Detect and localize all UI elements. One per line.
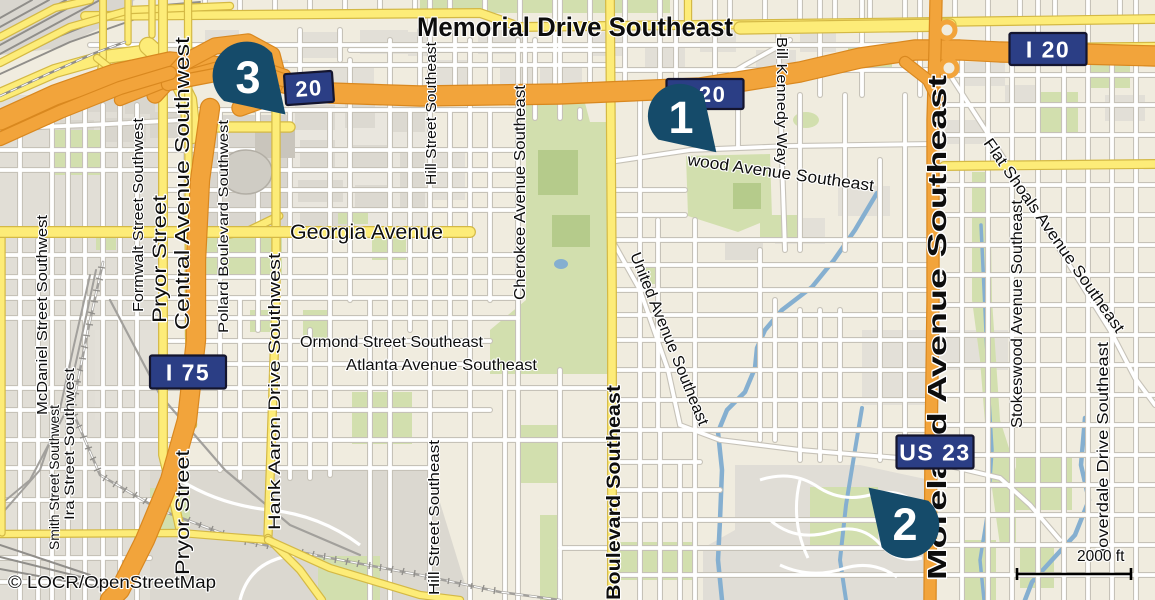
svg-text:Pryor Street: Pryor Street <box>173 449 194 575</box>
svg-text:McDaniel Street Southwest: McDaniel Street Southwest <box>34 214 51 415</box>
svg-text:Boulevard Southeast: Boulevard Southeast <box>604 384 625 600</box>
svg-text:Ira Street Southwest: Ira Street Southwest <box>61 368 77 520</box>
svg-text:Memorial Drive Southeast: Memorial Drive Southeast <box>417 12 733 42</box>
svg-text:20: 20 <box>294 75 323 102</box>
svg-text:loverdale Drive Southeast: loverdale Drive Southeast <box>1095 341 1112 552</box>
svg-text:2000 ft: 2000 ft <box>1077 548 1125 565</box>
svg-text:Pollard Boulevard Southwest: Pollard Boulevard Southwest <box>215 120 231 333</box>
svg-text:Bill Kennedy Way: Bill Kennedy Way <box>773 37 790 166</box>
svg-text:Hill Street Southeast: Hill Street Southeast <box>424 42 440 185</box>
svg-text:Stokeswood Avenue Southeast: Stokeswood Avenue Southeast <box>1009 199 1026 428</box>
svg-text:I 20: I 20 <box>1026 36 1070 62</box>
svg-text:2: 2 <box>892 499 917 550</box>
svg-text:Pryor Street: Pryor Street <box>150 194 171 323</box>
svg-text:Formwalt Street Southwest: Formwalt Street Southwest <box>131 118 147 312</box>
svg-text:Hill Street Southeast: Hill Street Southeast <box>427 440 443 595</box>
svg-text:Ormond Street Southeast: Ormond Street Southeast <box>300 334 484 351</box>
svg-text:© LOCR/OpenStreetMap: © LOCR/OpenStreetMap <box>8 572 216 592</box>
svg-text:3: 3 <box>235 52 260 103</box>
svg-text:Hank Aaron Drive Southwest: Hank Aaron Drive Southwest <box>266 252 284 530</box>
svg-text:Cherokee Avenue Southeast: Cherokee Avenue Southeast <box>512 84 529 300</box>
svg-text:Atlanta Avenue Southeast: Atlanta Avenue Southeast <box>346 357 538 374</box>
svg-text:Smith Street Southwest: Smith Street Southwest <box>46 405 62 550</box>
svg-text:US 23: US 23 <box>899 439 970 465</box>
svg-text:1: 1 <box>668 92 693 143</box>
svg-text:Georgia Avenue: Georgia Avenue <box>290 221 443 244</box>
svg-text:Central Avenue Southwest: Central Avenue Southwest <box>172 36 194 330</box>
svg-text:I 75: I 75 <box>166 359 210 385</box>
